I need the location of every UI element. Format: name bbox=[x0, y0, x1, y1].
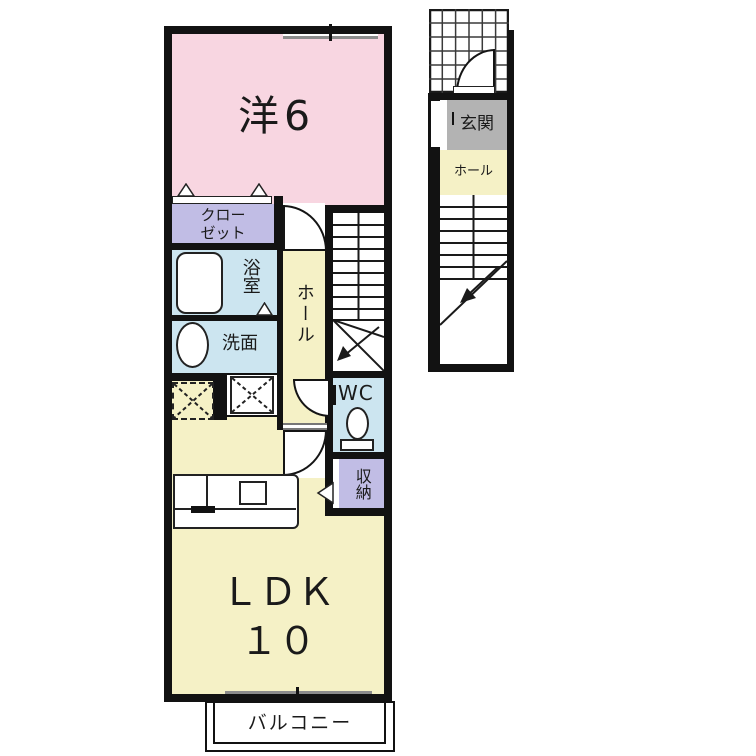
wall bbox=[428, 93, 514, 100]
hall-label: ホール bbox=[293, 283, 314, 346]
balcony: バルコニー bbox=[205, 701, 395, 752]
shoe-cabinet-icon bbox=[431, 101, 442, 147]
western-label: 洋6 bbox=[238, 93, 315, 140]
wall bbox=[507, 30, 514, 372]
floorplan-page: クロー ゼット 収納 bbox=[0, 0, 756, 756]
wall bbox=[428, 364, 514, 372]
ldk-label: ＬＤＫ １０ bbox=[172, 568, 384, 667]
washroom-label: 洗面 bbox=[222, 334, 258, 355]
bath-label: 浴室 bbox=[239, 258, 260, 294]
hall-1f-label: ホール bbox=[454, 165, 493, 180]
stairs-1f-icon bbox=[440, 195, 507, 364]
room-hall-1f: ホール bbox=[440, 150, 507, 195]
balcony-label: バルコニー bbox=[207, 713, 393, 735]
genkan-door-jamb bbox=[452, 112, 454, 125]
wc-label: WC bbox=[338, 382, 374, 405]
room-genkan: 玄関 bbox=[447, 100, 507, 150]
genkan-label: 玄関 bbox=[460, 115, 494, 135]
